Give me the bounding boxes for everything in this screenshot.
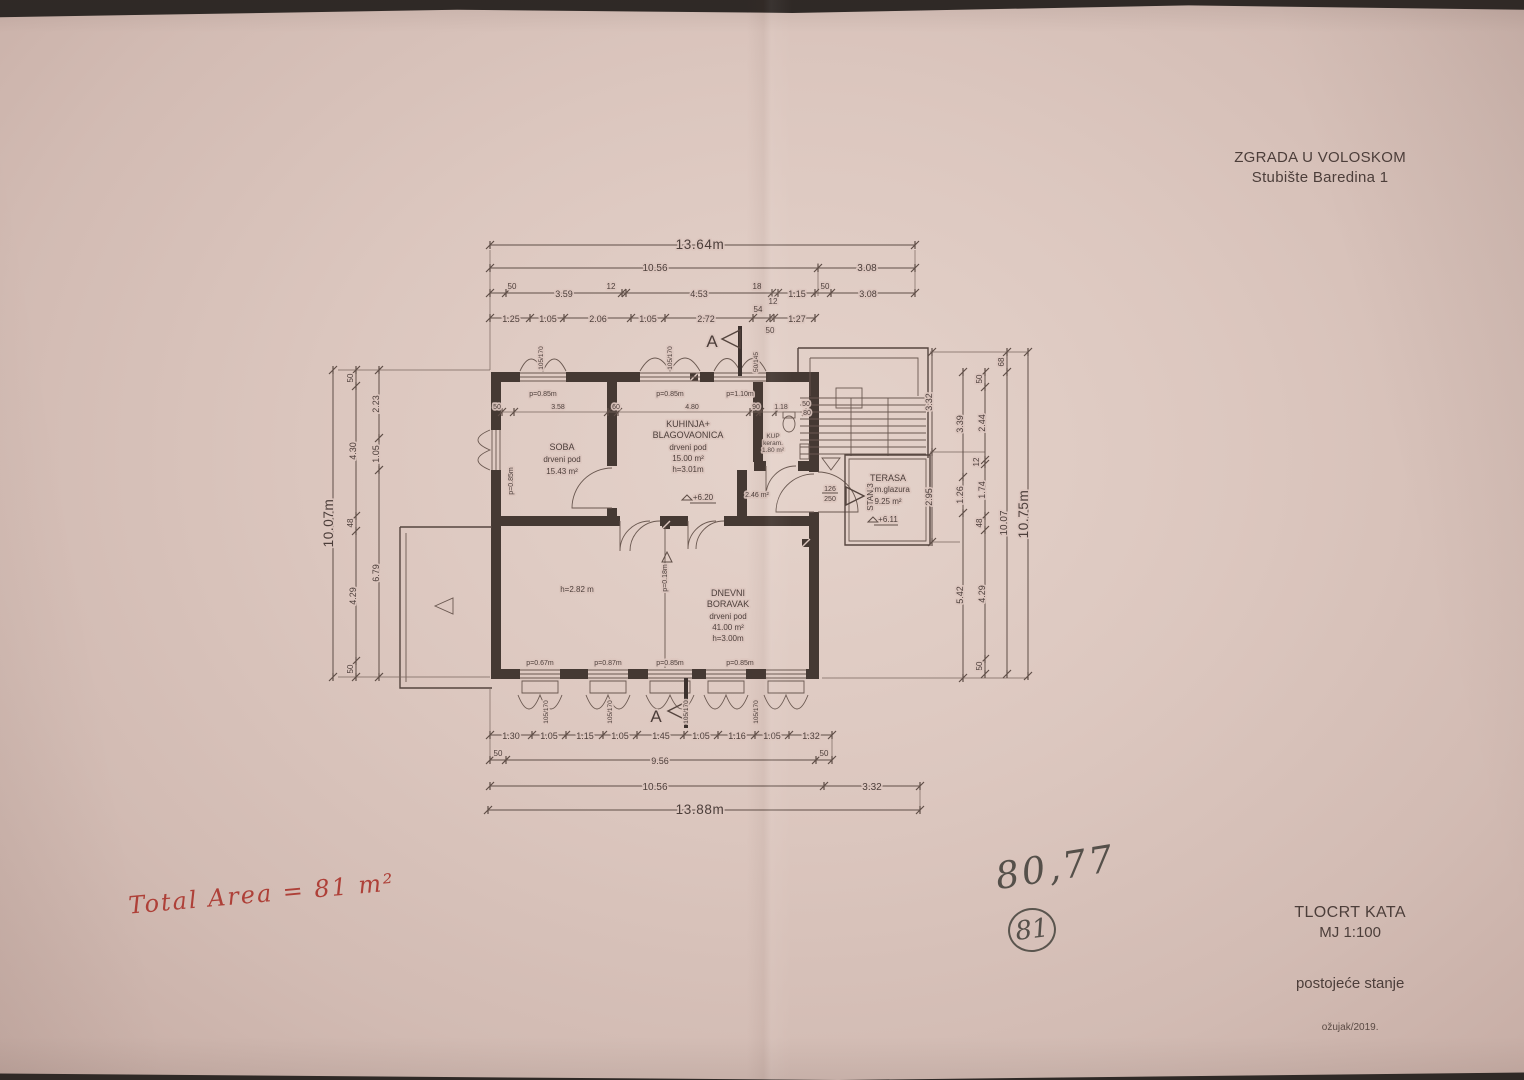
dim-top-r4-2: 1.05 — [539, 314, 557, 324]
dim-bot-r1-7: 1.16 — [728, 731, 746, 741]
dim-right-c2-1: 3.39 — [955, 415, 965, 433]
dim-left-c2-2: 4.30 — [348, 442, 358, 460]
hodnik-area: 2.46 m² — [745, 492, 769, 499]
idim-1: 50 — [493, 404, 501, 411]
dnevni-name1: DNEVNI — [711, 588, 745, 598]
kup-floor: keram. — [763, 440, 783, 447]
dim-top-r4-3: 2.06 — [589, 314, 607, 324]
kuhinja-level: +6.20 — [693, 493, 714, 502]
idim-6: 1.18 — [774, 404, 788, 411]
dim-top-r4-8: 1.27 — [788, 314, 806, 324]
dimensions-bottom: 1.30 1.05 1.15 1.05 1.45 1.05 1.16 1.05 … — [484, 688, 924, 817]
win-bot-4: p=0.85m — [726, 660, 754, 667]
dim-top-r4-6: 54 — [754, 305, 763, 314]
walls — [491, 372, 819, 679]
kup-area: 1.80 m² — [762, 447, 785, 454]
toilet-tank-icon — [783, 412, 795, 418]
win-size-2: 105/170 — [667, 346, 674, 370]
idim-5: 90 — [752, 404, 760, 411]
dim-right-c2-2: 1.26 — [955, 486, 965, 504]
dim-left-total: 10.07m — [321, 499, 336, 548]
dim-bot-r2-2: 9.56 — [651, 756, 669, 766]
dim-bot-r1-2: 1.05 — [540, 731, 558, 741]
win-left: p=0.85m — [508, 467, 515, 495]
dnevni-floor: drveni pod — [709, 612, 746, 621]
dimensions-top: 13.64m 10.56 3.08 50 3.59 12 4.53 18 1.1… — [486, 237, 919, 370]
dnevni-door-label: p=0.18m — [662, 564, 669, 592]
dim-left-c2-5: 50 — [346, 664, 355, 673]
win-top-3: p=1.10m — [726, 391, 754, 398]
dim-bot-r2-3: 50 — [820, 749, 829, 758]
kuhinja-floor: drveni pod — [669, 443, 706, 452]
dim-top-r3-3: 12 — [607, 282, 616, 291]
dim-top-r4-5: 2.72 — [697, 314, 715, 324]
soba-name: SOBA — [549, 442, 574, 452]
section-label-bottom: A — [650, 707, 662, 726]
dnevni-area: 41.00 m² — [712, 623, 744, 632]
entrance-door-height: 250 — [824, 496, 836, 503]
dim-top-r4-4: 1.05 — [639, 314, 657, 324]
dim-right-total: 10.75m — [1016, 490, 1031, 539]
soba-floor: drveni pod — [543, 455, 580, 464]
dim-top-r3-8: 3.08 — [859, 289, 877, 299]
dim-bot-r1-8: 1.05 — [763, 731, 781, 741]
dim-right-c3-3: 12 — [972, 457, 981, 466]
stair-width: 80 — [803, 410, 811, 417]
interior-dimensions: 50 3.58 60 4.80 90 1.18 50 80 — [493, 401, 811, 417]
dim-right-c4-1: 68 — [997, 357, 1006, 366]
dim-top-r2-1: 10.56 — [642, 263, 667, 274]
dim-bot-r1-1: 1.30 — [502, 731, 520, 741]
dim-top-r4b: 50 — [766, 326, 775, 335]
dim-right-c3-1: 50 — [975, 374, 984, 383]
dim-left-c2-3: 48 — [346, 518, 355, 527]
terasa-level: +6.11 — [878, 515, 898, 524]
sink-icon — [800, 444, 809, 459]
dim-bot-r1-4: 1.05 — [611, 731, 629, 741]
kuhinja-height: h=3.01m — [672, 465, 704, 474]
balcony-outline — [400, 527, 492, 688]
dim-left-c2-1: 50 — [346, 373, 355, 382]
dim-top-r4-7: 12 — [769, 297, 778, 306]
kuhinja-name2: BLAGOVAONICA — [653, 430, 724, 440]
kuhinja-area: 15.00 m² — [672, 454, 704, 463]
dim-right-c1-1: 3.32 — [924, 393, 934, 411]
dnevni-height2: h=2.82 m — [560, 585, 594, 594]
dim-right-c3-5: 48 — [975, 518, 984, 527]
dim-left-c3-1: 2.23 — [371, 395, 381, 413]
win-top-1: p=0.85m — [529, 391, 557, 398]
dim-right-c3-2: 2.44 — [977, 414, 987, 432]
kuhinja-name1: KUHINJA+ — [666, 419, 710, 429]
dim-bot-r3-1: 10.56 — [642, 782, 667, 793]
floor-plan-svg: A A SOBA drveni pod 15.43 m² KUHINJA+ BL… — [0, 0, 1524, 1080]
entrance-door-width: 126 — [824, 486, 836, 493]
win-size-4: 105/170 — [607, 700, 614, 724]
dim-top-r3-2: 3.59 — [555, 289, 573, 299]
dim-right-c3-6: 4.29 — [977, 585, 987, 603]
dim-bot-r1-3: 1.15 — [576, 731, 594, 741]
win-bot-2: p=0.87m — [594, 660, 622, 667]
stan-label: STAN 3 — [866, 483, 875, 511]
soba-area: 15.43 m² — [546, 467, 578, 476]
section-label-top: A — [706, 332, 718, 351]
win-bot-1: p=0.67m — [526, 660, 554, 667]
dim-bot-r2-1: 50 — [494, 749, 503, 758]
room-labels: SOBA drveni pod 15.43 m² KUHINJA+ BLAGOV… — [543, 419, 910, 668]
dnevni-name2: BORAVAK — [707, 599, 749, 609]
dim-left-c2-4: 4.29 — [348, 587, 358, 605]
dimensions-left: 10.07m 50 4.30 48 4.29 50 2.23 1.05 6.79 — [321, 366, 490, 681]
dnevni-height: h=3.00m — [712, 634, 744, 643]
idim-4: 4.80 — [685, 404, 699, 411]
dim-top-r4-1: 1.25 — [502, 314, 520, 324]
win-size-6: 105/170 — [753, 700, 760, 724]
bathroom-fixtures — [783, 388, 862, 459]
dim-top-total: 13.64m — [676, 237, 725, 252]
dim-top-r2-2: 3.08 — [857, 263, 877, 274]
win-bot-3: p=0.85m — [656, 660, 684, 667]
dim-top-r3-1: 50 — [508, 282, 517, 291]
dim-bot-r1-6: 1.05 — [692, 731, 710, 741]
balcony-arrow-icon — [435, 598, 453, 614]
window-labels: p=0.85m p=0.85m p=1.10m p=0.85m p=0.67m … — [508, 346, 760, 724]
dim-right-c4-2: 10.07 — [999, 510, 1010, 535]
idim-2: 3.58 — [551, 404, 565, 411]
win-size-3: 105/170 — [543, 700, 550, 724]
win-size-small: 50/145 — [753, 352, 760, 372]
terasa-name: TERASA — [870, 473, 906, 483]
dim-right-c2-3: 5.42 — [955, 586, 965, 604]
terasa-area: 9.25 m² — [874, 497, 901, 506]
dim-bot-r3-2: 3.32 — [862, 782, 882, 793]
kup-name: KUP — [766, 433, 779, 440]
dim-bot-r1-5: 1.45 — [652, 731, 670, 741]
win-top-2: p=0.85m — [656, 391, 684, 398]
dim-right-c3-4: 1.74 — [977, 481, 987, 499]
dim-top-r3-4: 4.53 — [690, 289, 708, 299]
dim-bot-r1-9: 1.32 — [802, 731, 820, 741]
dim-right-c1-2: 2.95 — [924, 488, 934, 506]
dim-bot-total: 13.88m — [676, 802, 725, 817]
idim-3: 60 — [612, 404, 620, 411]
dim-top-r3-5: 18 — [753, 282, 762, 291]
dim-right-c3-7: 50 — [975, 661, 984, 670]
dim-left-c3-2: 1.05 — [371, 445, 381, 463]
win-size-1: 105/170 — [538, 346, 545, 370]
photographed-drawing: ZGRADA U VOLOSKOM Stubište Baredina 1 TL… — [0, 0, 1524, 1080]
dim-top-r3-7: 50 — [821, 282, 830, 291]
dim-top-r3-6: 1.15 — [788, 289, 806, 299]
dim-left-c3-3: 6.79 — [371, 564, 381, 582]
win-size-5: 105/170 — [683, 700, 690, 724]
idim-7: 50 — [802, 401, 810, 408]
